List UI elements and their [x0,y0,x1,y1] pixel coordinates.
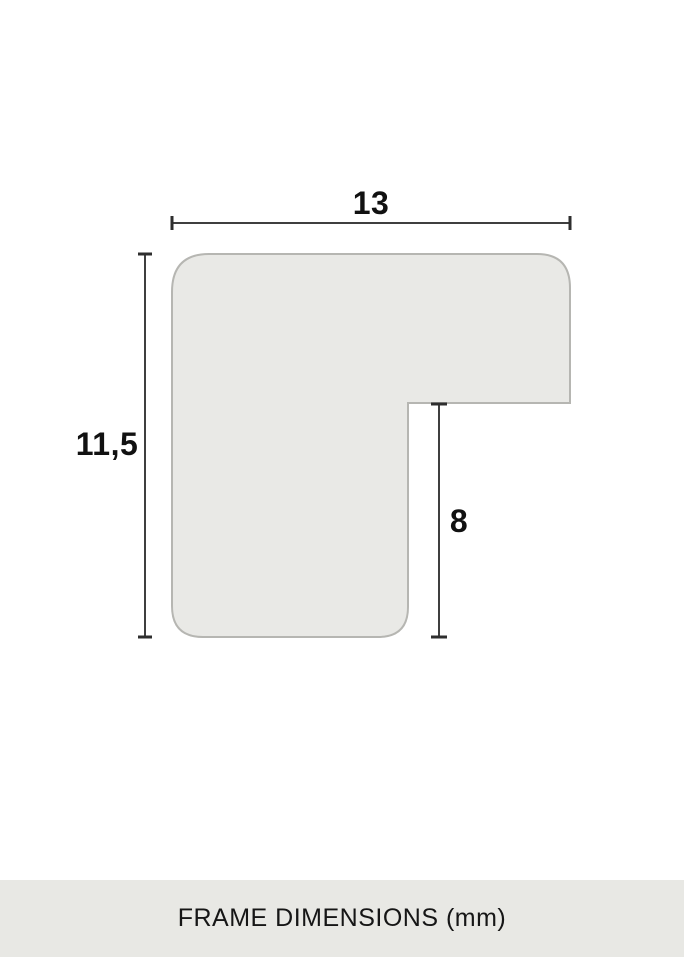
frame-profile-shape [172,254,570,637]
rabbet-dimension [431,404,447,637]
width-dimension-label: 13 [353,187,390,219]
footer-band: FRAME DIMENSIONS (mm) [0,880,684,957]
rabbet-dimension-label: 8 [450,505,468,537]
profile-diagram-canvas [0,0,684,957]
height-dimension [138,254,152,637]
frame-dimensions-figure: 13 11,5 8 FRAME DIMENSIONS (mm) [0,0,684,957]
height-dimension-label: 11,5 [76,428,139,460]
footer-caption: FRAME DIMENSIONS (mm) [178,904,507,933]
